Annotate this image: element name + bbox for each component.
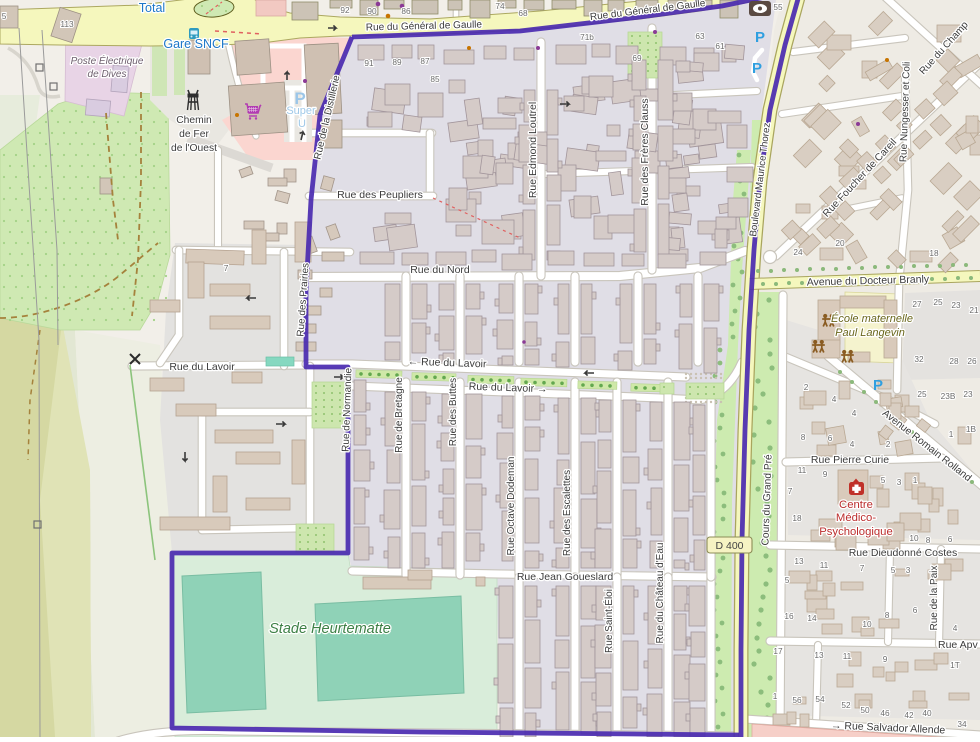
svg-text:10: 10 (862, 619, 872, 629)
svg-text:113: 113 (60, 19, 74, 29)
svg-text:4: 4 (832, 394, 837, 404)
svg-text:32: 32 (914, 354, 924, 364)
svg-text:55: 55 (773, 2, 783, 12)
svg-text:Rue de la Paix: Rue de la Paix (929, 565, 940, 630)
svg-text:21: 21 (969, 305, 979, 315)
svg-text:P: P (752, 60, 762, 77)
svg-text:68: 68 (518, 8, 528, 18)
svg-text:5: 5 (881, 475, 886, 485)
svg-text:7: 7 (224, 263, 229, 273)
svg-text:Centre: Centre (839, 499, 873, 511)
svg-text:Psychologique: Psychologique (819, 526, 892, 538)
svg-text:11: 11 (820, 560, 829, 570)
svg-text:Rue Pierre Curie: Rue Pierre Curie (811, 454, 889, 466)
svg-text:Total: Total (139, 1, 165, 15)
svg-text:42: 42 (904, 710, 914, 720)
svg-text:Poste Électrique: Poste Électrique (71, 54, 144, 67)
svg-text:16: 16 (784, 611, 794, 621)
svg-text:1T: 1T (950, 660, 960, 670)
svg-text:28: 28 (949, 356, 959, 366)
svg-text:11: 11 (798, 465, 807, 475)
svg-text:2: 2 (886, 439, 891, 449)
svg-text:61: 61 (715, 41, 725, 51)
svg-text:6: 6 (913, 605, 918, 615)
svg-text:P: P (755, 29, 765, 46)
svg-text:87: 87 (420, 56, 430, 66)
svg-text:40: 40 (922, 708, 932, 718)
svg-text:Rue des Peupliers: Rue des Peupliers (337, 189, 423, 201)
svg-text:U: U (298, 118, 306, 130)
svg-text:D 400: D 400 (715, 540, 743, 552)
svg-text:Rue du Château d'Eau: Rue du Château d'Eau (655, 543, 666, 644)
svg-text:2: 2 (804, 382, 809, 392)
svg-text:8: 8 (801, 432, 806, 442)
svg-text:69: 69 (632, 53, 642, 63)
svg-text:Rue des Escalettes: Rue des Escalettes (562, 470, 573, 556)
svg-text:Rue Saint-Éloi: Rue Saint-Éloi (602, 589, 615, 653)
svg-text:1: 1 (773, 691, 778, 701)
svg-text:74: 74 (495, 1, 505, 11)
svg-text:Rue Edmond Loutrel: Rue Edmond Loutrel (527, 102, 539, 198)
svg-text:Gare SNCF: Gare SNCF (163, 37, 229, 51)
svg-text:8: 8 (885, 610, 890, 620)
svg-text:Rue de Bretagne: Rue de Bretagne (394, 377, 405, 453)
svg-text:Super: Super (286, 105, 316, 117)
svg-text:23B: 23B (941, 391, 956, 401)
svg-text:4: 4 (953, 623, 958, 633)
svg-text:86: 86 (401, 6, 411, 16)
svg-text:23: 23 (963, 389, 973, 399)
svg-text:46: 46 (880, 708, 890, 718)
svg-text:34: 34 (957, 719, 967, 729)
svg-text:Rue des Buttes: Rue des Buttes (448, 378, 459, 446)
svg-text:4: 4 (852, 408, 857, 418)
svg-text:5: 5 (2, 11, 7, 21)
svg-text:50: 50 (860, 705, 870, 715)
svg-text:85: 85 (430, 74, 440, 84)
svg-text:5: 5 (891, 565, 896, 575)
svg-text:25: 25 (933, 297, 943, 307)
svg-text:6: 6 (828, 433, 833, 443)
svg-text:54: 54 (815, 694, 825, 704)
svg-text:4: 4 (850, 439, 855, 449)
svg-text:7: 7 (788, 486, 793, 496)
svg-text:1: 1 (913, 475, 918, 485)
svg-text:91: 91 (364, 58, 374, 68)
svg-text:de l'Ouest: de l'Ouest (171, 143, 217, 154)
svg-text:6: 6 (948, 534, 953, 544)
svg-text:18: 18 (929, 248, 939, 258)
svg-text:1B: 1B (966, 424, 977, 434)
svg-text:25: 25 (917, 389, 927, 399)
svg-text:20: 20 (835, 238, 845, 248)
svg-text:Rue Apv: Rue Apv (938, 639, 978, 651)
svg-text:Paul Langevin: Paul Langevin (835, 327, 905, 339)
svg-text:1: 1 (949, 429, 954, 439)
svg-text:3: 3 (906, 565, 911, 575)
svg-text:Rue Octave Dodeman: Rue Octave Dodeman (506, 457, 517, 556)
svg-text:92: 92 (340, 5, 350, 15)
svg-text:Rue des Frères Clauss: Rue des Frères Clauss (639, 98, 651, 205)
svg-text:56: 56 (792, 695, 802, 705)
svg-text:9: 9 (823, 469, 828, 479)
svg-text:7: 7 (860, 563, 865, 573)
svg-text:13: 13 (794, 556, 804, 566)
svg-text:École maternelle: École maternelle (831, 312, 913, 325)
svg-text:23: 23 (951, 300, 961, 310)
svg-text:26: 26 (967, 356, 977, 366)
svg-text:10: 10 (909, 533, 919, 543)
svg-text:5: 5 (785, 575, 790, 585)
svg-text:89: 89 (392, 57, 402, 67)
svg-text:P: P (873, 377, 883, 394)
svg-text:Rue du Lavoir: Rue du Lavoir (169, 361, 235, 373)
svg-text:17: 17 (773, 646, 783, 656)
svg-text:14: 14 (807, 613, 817, 623)
svg-text:de Dives: de Dives (88, 69, 127, 80)
svg-text:18: 18 (792, 513, 802, 523)
svg-text:90: 90 (367, 6, 377, 16)
svg-text:71b: 71b (580, 32, 594, 42)
svg-text:24: 24 (793, 247, 803, 257)
svg-text:9: 9 (883, 654, 888, 664)
svg-text:52: 52 (841, 700, 851, 710)
svg-text:8: 8 (926, 535, 931, 545)
svg-text:Rue Dieudonné Costes: Rue Dieudonné Costes (849, 547, 958, 559)
svg-text:11: 11 (843, 651, 852, 661)
svg-text:63: 63 (695, 31, 705, 41)
svg-text:3: 3 (897, 477, 902, 487)
svg-text:Stade Heurtematte: Stade Heurtematte (269, 621, 391, 637)
svg-text:Chemin: Chemin (176, 115, 212, 126)
svg-text:de Fer: de Fer (179, 129, 209, 140)
svg-text:Rue du Nord: Rue du Nord (410, 264, 470, 276)
svg-text:27: 27 (912, 299, 922, 309)
svg-text:Rue Jean Goueslard: Rue Jean Goueslard (517, 571, 613, 583)
svg-text:13: 13 (814, 650, 824, 660)
svg-text:Médico-: Médico- (836, 512, 876, 524)
